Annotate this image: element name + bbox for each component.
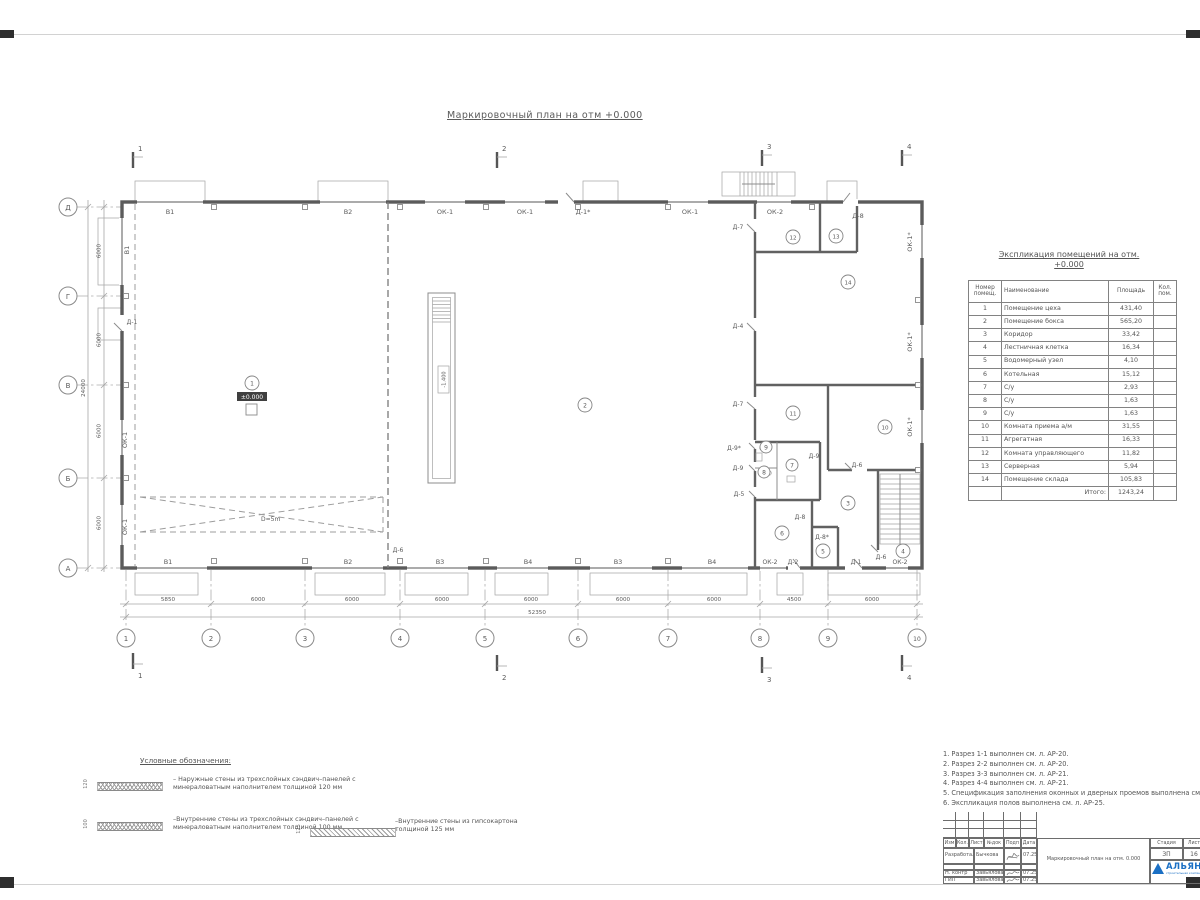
stamp-row: Н. контр Завьялова 07.25 bbox=[943, 870, 1037, 877]
table-cell: 6 bbox=[969, 368, 1002, 381]
dimension-lines-left: 6000 6000 6000 6000 24000 bbox=[81, 200, 107, 572]
table-row: 9С/у1,63 bbox=[969, 408, 1177, 421]
table-row: 8С/у1,63 bbox=[969, 395, 1177, 408]
table-cell: 16,34 bbox=[1109, 342, 1154, 355]
gate-label: В1 bbox=[164, 558, 173, 566]
dim-label: 6000 bbox=[97, 332, 103, 347]
room-number: 2 bbox=[583, 403, 587, 410]
table-cell: Помещение цеха bbox=[1002, 302, 1109, 315]
table-cell bbox=[1154, 355, 1177, 368]
revision-cell bbox=[984, 829, 1004, 838]
table-row: 7С/у2,93 bbox=[969, 381, 1177, 394]
schedule-header-area: Площадь bbox=[1109, 280, 1154, 302]
table-cell: 2 bbox=[969, 315, 1002, 328]
stamp-role: Н. контр bbox=[943, 870, 974, 877]
table-cell: 8 bbox=[969, 395, 1002, 408]
table-cell bbox=[1154, 408, 1177, 421]
schedule-header-name: Наименование bbox=[1002, 280, 1109, 302]
crane-zone: D=5m bbox=[140, 497, 383, 532]
dim-label: 6000 bbox=[435, 597, 450, 603]
logo-triangle-icon bbox=[1152, 863, 1164, 874]
table-cell: 431,40 bbox=[1109, 302, 1154, 315]
table-cell bbox=[1154, 461, 1177, 474]
grid-axis-label: В bbox=[66, 382, 71, 390]
table-row: 6Котельная15,12 bbox=[969, 368, 1177, 381]
inspection-pit: -1.400 bbox=[428, 293, 455, 483]
table-cell: Комната управляющего bbox=[1002, 447, 1109, 460]
revision-cell bbox=[1021, 821, 1037, 830]
elevation-mark: ±0.000 bbox=[237, 392, 267, 415]
revision-cell bbox=[956, 821, 969, 830]
revision-cell bbox=[1004, 821, 1021, 830]
window-label: ОК-1* bbox=[906, 417, 914, 437]
table-cell: Котельная bbox=[1002, 368, 1109, 381]
schedule-header-count: Кол. пом. bbox=[1154, 280, 1177, 302]
room-number: 4 bbox=[901, 549, 905, 556]
room-number: 10 bbox=[881, 426, 889, 432]
company-logo: АЛЬЯНС строительная компания bbox=[1151, 861, 1200, 877]
table-cell bbox=[1154, 368, 1177, 381]
window-label: ОК-1* bbox=[906, 332, 914, 352]
gate-label: В1 bbox=[166, 208, 175, 216]
grid-axis-label: 9 bbox=[826, 635, 830, 643]
room-number: 8 bbox=[762, 470, 766, 477]
door-label: Д-1* bbox=[576, 208, 592, 216]
door-label: Д-9* bbox=[727, 445, 741, 452]
room-number: 3 bbox=[846, 501, 850, 508]
door-label: Д-6 bbox=[852, 462, 863, 469]
dim-label: 5850 bbox=[161, 597, 176, 603]
stamp-header-cell: Дата bbox=[1021, 838, 1037, 848]
table-cell: 11 bbox=[969, 434, 1002, 447]
dim-label: 6000 bbox=[97, 515, 103, 530]
sheet-frame-bottom bbox=[0, 884, 1200, 885]
sheet-corner-mark bbox=[1186, 30, 1200, 38]
note-line: 4. Разрез 4-4 выполнен см. л. АР-21. bbox=[943, 779, 1200, 789]
room-numbers: 1 2 3 4 5 6 7 8 9 10 11 12 13 14 bbox=[245, 229, 910, 558]
revision-cell bbox=[956, 812, 969, 821]
table-cell: 565,20 bbox=[1109, 315, 1154, 328]
table-cell: 1,63 bbox=[1109, 395, 1154, 408]
table-cell: Комната приема а/м bbox=[1002, 421, 1109, 434]
table-cell: 13 bbox=[969, 461, 1002, 474]
door-label: Д-6 bbox=[393, 547, 404, 554]
table-cell: 4,10 bbox=[1109, 355, 1154, 368]
schedule-body: 1Помещение цеха431,402Помещение бокса565… bbox=[969, 302, 1177, 487]
table-cell: Лестничная клетка bbox=[1002, 342, 1109, 355]
schedule-title: Экспликация помещений на отм. +0.000 bbox=[968, 250, 1170, 271]
table-cell bbox=[1154, 302, 1177, 315]
table-cell: С/у bbox=[1002, 408, 1109, 421]
table-cell: С/у bbox=[1002, 381, 1109, 394]
stamp-name: Завьялова bbox=[974, 870, 1004, 877]
revision-cell bbox=[984, 821, 1004, 830]
table-row: 14Помещение склада105,83 bbox=[969, 474, 1177, 487]
pit-elevation-label: -1.400 bbox=[442, 371, 448, 387]
sheet-corner-mark bbox=[0, 877, 14, 888]
stamp-header-cell: Лист bbox=[969, 838, 984, 848]
notes-list: 1. Разрез 1-1 выполнен см. л. АР-20.2. Р… bbox=[943, 750, 1200, 809]
stamp-doc-title: Маркировочный план на отм. 0.000 bbox=[1037, 838, 1150, 884]
grid-bubbles-bottom: 1 2 3 4 5 6 7 8 9 10 bbox=[117, 629, 926, 647]
table-row: 5Водомерный узел4,10 bbox=[969, 355, 1177, 368]
table-row: 2Помещение бокса565,20 bbox=[969, 315, 1177, 328]
room-number: 9 bbox=[764, 445, 768, 452]
table-cell bbox=[1154, 315, 1177, 328]
dim-total-label: 52350 bbox=[528, 610, 546, 616]
stamp-row: Разработал Бычкова 07.25 bbox=[943, 848, 1037, 864]
stamp-header-row: Изм Кол. Лист №док Подп Дата bbox=[943, 838, 1037, 848]
crane-zone-label: D=5m bbox=[261, 516, 280, 523]
table-cell: 9 bbox=[969, 408, 1002, 421]
dim-label: 4500 bbox=[787, 597, 802, 603]
window-label: ОК-1 bbox=[517, 208, 533, 216]
signature-scribble bbox=[1004, 870, 1021, 877]
drawing-sheet: Маркировочный план на отм +0.000 bbox=[0, 0, 1200, 900]
revision-cell bbox=[1004, 829, 1021, 838]
window-label: ОК-1 bbox=[437, 208, 453, 216]
door-label: Д-9 bbox=[809, 453, 820, 460]
grid-axis-label: 5 bbox=[483, 635, 487, 643]
table-cell: 12 bbox=[969, 447, 1002, 460]
note-line: 6. Экспликация полов выполнена см. л. АР… bbox=[943, 799, 1200, 809]
room-number: 11 bbox=[789, 412, 797, 418]
legend-swatch-interior-wall bbox=[97, 822, 163, 831]
table-cell: 33,42 bbox=[1109, 329, 1154, 342]
note-line: 3. Разрез 3-3 выполнен см. л. АР-21. bbox=[943, 770, 1200, 780]
dim-label: 6000 bbox=[524, 597, 539, 603]
stamp-stage-label: Стадия bbox=[1150, 838, 1183, 848]
table-cell: 1 bbox=[969, 302, 1002, 315]
table-cell: 14 bbox=[969, 474, 1002, 487]
room-number: 7 bbox=[790, 463, 794, 470]
exterior-stair bbox=[722, 172, 795, 196]
dimension-lines-bottom: 5850 6000 6000 6000 6000 6000 6000 4500 … bbox=[120, 597, 923, 620]
door-label: Д-1 bbox=[127, 319, 138, 326]
revision-cell bbox=[943, 821, 956, 830]
legend-item-text: –Внутренние стены из гипсокартона толщин… bbox=[395, 818, 525, 834]
door-label: Д-9 bbox=[733, 465, 744, 472]
section-mark-label: 1 bbox=[138, 672, 142, 680]
door-label: Д-8* bbox=[815, 534, 829, 541]
table-cell: С/у bbox=[1002, 395, 1109, 408]
door-label: Д-7 bbox=[733, 401, 744, 408]
table-cell: 1,63 bbox=[1109, 408, 1154, 421]
table-cell: 3 bbox=[969, 329, 1002, 342]
door-label: Д-6 bbox=[876, 554, 887, 561]
section-mark-label: 4 bbox=[907, 674, 912, 682]
revision-cell bbox=[956, 829, 969, 838]
door-label: Д-8 bbox=[795, 514, 806, 521]
section-mark-label: 2 bbox=[502, 674, 506, 682]
dim-label: 6000 bbox=[97, 423, 103, 438]
section-mark-label: 4 bbox=[907, 143, 912, 151]
legend-dim: 100 bbox=[83, 819, 89, 829]
doc-title-text: Маркировочный план на отм. 0.000 bbox=[1047, 856, 1141, 862]
grid-axis-label: 7 bbox=[666, 635, 670, 643]
window-label: ОК-2 bbox=[763, 559, 778, 566]
stamp-name: Завьялова bbox=[974, 877, 1004, 884]
legend-dim: 120 bbox=[83, 779, 89, 789]
stamp-header-cell: №док bbox=[984, 838, 1004, 848]
schedule-header-number: Номер помещ. bbox=[969, 280, 1002, 302]
door-label: Д-4 bbox=[733, 323, 744, 330]
signature-scribble bbox=[1004, 848, 1021, 864]
table-cell: 15,12 bbox=[1109, 368, 1154, 381]
section-mark-label: 1 bbox=[138, 145, 142, 153]
schedule-total-row: Итого: 1243,24 bbox=[969, 487, 1177, 500]
door-label: Д-1 bbox=[851, 559, 862, 566]
sheet-frame-top bbox=[0, 34, 1200, 35]
gate-label: В3 bbox=[614, 558, 623, 566]
window-label: ОК-1 bbox=[121, 519, 129, 535]
sheet-corner-mark bbox=[0, 30, 14, 38]
dim-label: 6000 bbox=[251, 597, 266, 603]
window-label: ОК-2 bbox=[893, 559, 908, 566]
legend-item-text: – Наружные стены из трехслойных сэндвич–… bbox=[173, 776, 368, 792]
stamp-role: ГИП bbox=[943, 877, 974, 884]
table-cell: Помещение бокса bbox=[1002, 315, 1109, 328]
revision-cell bbox=[969, 812, 984, 821]
table-row: 11Агрегатная16,33 bbox=[969, 434, 1177, 447]
window-label: ОК-1 bbox=[682, 208, 698, 216]
gate-label: В1 bbox=[123, 246, 131, 255]
gate-label: В3 bbox=[436, 558, 445, 566]
table-cell: 31,55 bbox=[1109, 421, 1154, 434]
stamp-date: 07.25 bbox=[1021, 870, 1037, 877]
stamp-role: Разработал bbox=[943, 848, 974, 864]
door-label: Д-7 bbox=[733, 224, 744, 231]
stamp-name: Бычкова bbox=[974, 848, 1004, 864]
revision-cell bbox=[1021, 812, 1037, 821]
table-cell: 105,83 bbox=[1109, 474, 1154, 487]
table-cell: 7 bbox=[969, 381, 1002, 394]
stamp-logo-cell: АЛЬЯНС строительная компания bbox=[1150, 860, 1200, 884]
stamp-header-cell: Изм bbox=[943, 838, 956, 848]
table-cell: 4 bbox=[969, 342, 1002, 355]
table-cell: 2,93 bbox=[1109, 381, 1154, 394]
table-row: 1Помещение цеха431,40 bbox=[969, 302, 1177, 315]
gate-label: В4 bbox=[708, 558, 717, 566]
legend-dim: 125 bbox=[296, 824, 302, 834]
table-cell: Серверная bbox=[1002, 461, 1109, 474]
elevation-value: ±0.000 bbox=[241, 394, 263, 401]
grid-axis-label: 2 bbox=[209, 635, 213, 643]
legend: Условные обозначения: 120 – Наружные сте… bbox=[75, 748, 545, 868]
door-label: Д-8 bbox=[852, 212, 864, 220]
stamp-row: ГИП Завьялова 07.25 bbox=[943, 877, 1037, 884]
table-cell: 10 bbox=[969, 421, 1002, 434]
grid-axis-label: Г bbox=[66, 293, 70, 301]
grid-bubbles-left: Д Г В Б А bbox=[59, 198, 77, 577]
table-cell bbox=[1154, 447, 1177, 460]
stamp-date: 07.25 bbox=[1021, 877, 1037, 884]
revision-cell bbox=[969, 829, 984, 838]
note-line: 5. Спецификация заполнения оконных и две… bbox=[943, 789, 1200, 799]
section-mark-label: 3 bbox=[767, 676, 771, 684]
dim-label: 6000 bbox=[707, 597, 722, 603]
grid-axis-label: 6 bbox=[576, 635, 581, 643]
table-cell: 16,33 bbox=[1109, 434, 1154, 447]
title-block: Изм Кол. Лист №док Подп Дата Разработал … bbox=[943, 812, 1200, 884]
logo-subtext: строительная компания bbox=[1166, 872, 1200, 875]
section-mark-label: 3 bbox=[767, 143, 771, 151]
note-line: 1. Разрез 1-1 выполнен см. л. АР-20. bbox=[943, 750, 1200, 760]
dim-total-label: 24000 bbox=[81, 379, 87, 397]
door-label: Д-5 bbox=[734, 491, 745, 498]
grid-axis-label: 8 bbox=[758, 635, 762, 643]
grid-axis-label: 1 bbox=[124, 635, 128, 643]
revision-cell bbox=[1004, 812, 1021, 821]
door-label: Д-2 bbox=[788, 559, 799, 566]
grid-axis-label: Б bbox=[66, 475, 71, 483]
dim-label: 6000 bbox=[345, 597, 360, 603]
dim-label: 6000 bbox=[616, 597, 631, 603]
table-row: 4Лестничная клетка16,34 bbox=[969, 342, 1177, 355]
interior-partitions bbox=[747, 202, 922, 568]
room-number: 5 bbox=[821, 549, 825, 556]
room-number: 13 bbox=[832, 235, 840, 241]
legend-swatch-exterior-wall bbox=[97, 782, 163, 791]
grid-axis-label: А bbox=[66, 565, 71, 573]
table-cell: 5,94 bbox=[1109, 461, 1154, 474]
table-cell: Агрегатная bbox=[1002, 434, 1109, 447]
signature-scribble bbox=[1004, 877, 1021, 884]
stamp-sheet-label: Лист bbox=[1183, 838, 1200, 848]
table-cell: Коридор bbox=[1002, 329, 1109, 342]
gate-label: В4 bbox=[524, 558, 533, 566]
window-label: ОК-2 bbox=[767, 208, 783, 216]
internal-stair bbox=[880, 474, 920, 544]
table-row: 10Комната приема а/м31,55 bbox=[969, 421, 1177, 434]
stamp-stage-value: ЗП bbox=[1150, 848, 1183, 860]
gate-label: В2 bbox=[344, 208, 353, 216]
room-number: 1 bbox=[250, 381, 254, 388]
window-label: ОК-1 bbox=[121, 432, 129, 448]
table-cell bbox=[1154, 474, 1177, 487]
stamp-sheet-value: 16 bbox=[1183, 848, 1200, 860]
table-cell: Водомерный узел bbox=[1002, 355, 1109, 368]
schedule-title-line2: +0.000 bbox=[1054, 260, 1084, 269]
revision-grid bbox=[943, 812, 1037, 838]
room-schedule: Экспликация помещений на отм. +0.000 Ном… bbox=[968, 250, 1170, 501]
grid-axis-label: 3 bbox=[303, 635, 307, 643]
revision-cell bbox=[969, 821, 984, 830]
revision-cell bbox=[1021, 829, 1037, 838]
table-cell bbox=[1154, 434, 1177, 447]
table-cell bbox=[1154, 421, 1177, 434]
table-row: 12Комната управляющего11,82 bbox=[969, 447, 1177, 460]
table-cell bbox=[1154, 329, 1177, 342]
page-title: Маркировочный план на отм +0.000 bbox=[447, 110, 643, 121]
floor-plan: -1.400 D=5m 1 2 bbox=[40, 140, 950, 695]
grid-axis-label: 4 bbox=[398, 635, 403, 643]
dim-label: 6000 bbox=[865, 597, 880, 603]
table-cell bbox=[1154, 395, 1177, 408]
table-cell bbox=[1154, 381, 1177, 394]
schedule-total-label: Итого: bbox=[1002, 487, 1109, 500]
table-row: 13Серверная5,94 bbox=[969, 461, 1177, 474]
legend-title: Условные обозначения: bbox=[140, 756, 231, 765]
window-label: ОК-1* bbox=[906, 232, 914, 252]
grid-axis-label: 10 bbox=[913, 636, 921, 643]
table-cell bbox=[1154, 342, 1177, 355]
section-mark-label: 2 bbox=[502, 145, 506, 153]
table-row: 3Коридор33,42 bbox=[969, 329, 1177, 342]
revision-cell bbox=[984, 812, 1004, 821]
revision-cell bbox=[943, 829, 956, 838]
gate-label: В2 bbox=[344, 558, 353, 566]
opening-labels: В1 В2 ОК-1 ОК-1 Д-1* ОК-1 ОК-2 Д-8 В1 В2… bbox=[121, 208, 914, 566]
stamp-header-cell: Кол. bbox=[956, 838, 969, 848]
room-number: 14 bbox=[844, 281, 852, 287]
table-cell: Помещение склада bbox=[1002, 474, 1109, 487]
dim-label: 6000 bbox=[97, 243, 103, 258]
note-line: 2. Разрез 2-2 выполнен см. л. АР-20. bbox=[943, 760, 1200, 770]
legend-swatch-gypsum-wall bbox=[310, 828, 396, 837]
room-number: 12 bbox=[789, 236, 796, 242]
room-number: 6 bbox=[780, 531, 784, 538]
stamp-date: 07.25 bbox=[1021, 848, 1037, 864]
schedule-total-value: 1243,24 bbox=[1109, 487, 1154, 500]
stamp-header-cell: Подп bbox=[1004, 838, 1021, 848]
table-cell: 5 bbox=[969, 355, 1002, 368]
grid-axis-label: Д bbox=[65, 204, 71, 212]
schedule-title-line1: Экспликация помещений на отм. bbox=[999, 250, 1140, 259]
schedule-table: Номер помещ. Наименование Площадь Кол. п… bbox=[968, 280, 1177, 501]
table-cell: 11,82 bbox=[1109, 447, 1154, 460]
revision-cell bbox=[943, 812, 956, 821]
